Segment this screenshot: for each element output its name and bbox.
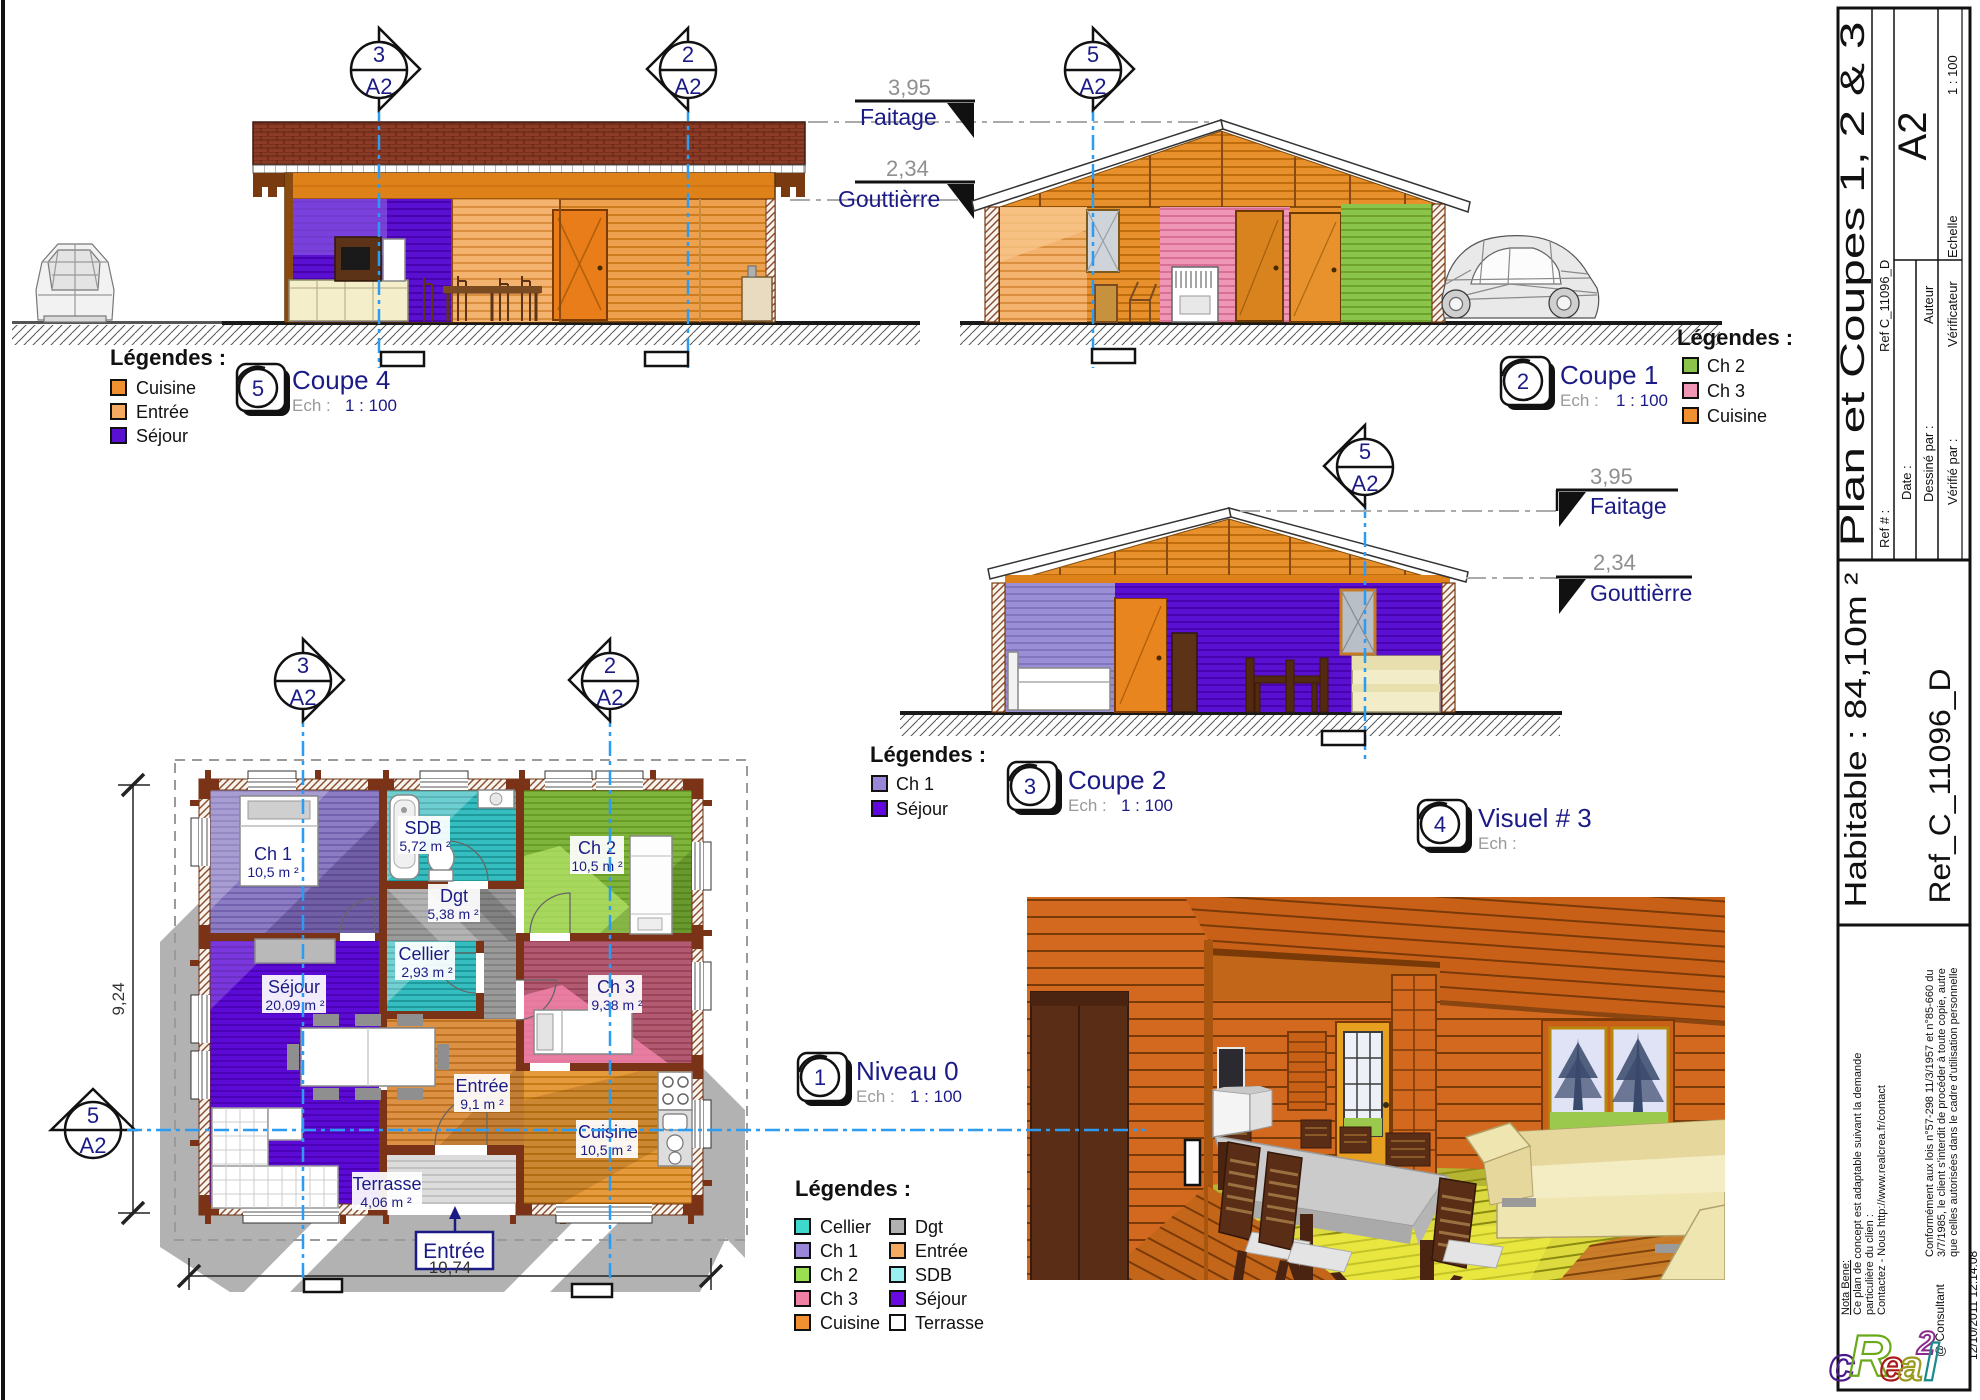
svg-text:2: 2 (604, 653, 616, 678)
svg-text:Auteur: Auteur (1921, 285, 1936, 324)
svg-text:Cellier: Cellier (820, 1217, 871, 1237)
svg-text:3: 3 (373, 42, 385, 67)
svg-text:Ech :: Ech : (1068, 796, 1107, 815)
svg-text:5: 5 (1359, 439, 1371, 464)
svg-text:Ch 3: Ch 3 (597, 977, 635, 997)
svg-text:Vérifié par :: Vérifié par : (1945, 439, 1960, 505)
svg-text:Vérificateur: Vérificateur (1945, 281, 1960, 347)
svg-text:Gouttièrre: Gouttièrre (1590, 580, 1692, 606)
svg-text:Cellier: Cellier (398, 944, 449, 964)
svg-text:3: 3 (1024, 774, 1036, 799)
svg-text:A2: A2 (80, 1133, 107, 1158)
svg-text:Contactez - Nous http://www.re: Contactez - Nous http://www.realcrea.fr/… (1876, 1085, 1888, 1315)
svg-text:10,5 m ²: 10,5 m ² (247, 864, 299, 880)
svg-text:Ch 3: Ch 3 (1707, 381, 1745, 401)
svg-text:Habitable : 84,10m ²: Habitable : 84,10m ² (1838, 573, 1873, 908)
svg-text:9,24: 9,24 (109, 982, 128, 1015)
svg-text:A2: A2 (1891, 112, 1935, 161)
svg-text:Niveau 0: Niveau 0 (856, 1056, 959, 1086)
svg-text:2: 2 (682, 42, 694, 67)
svg-text:Entrée: Entrée (136, 402, 189, 422)
svg-text:A2: A2 (1352, 471, 1379, 496)
svg-text:Coupe 1: Coupe 1 (1560, 360, 1658, 390)
svg-text:2,93 m ²: 2,93 m ² (401, 964, 453, 980)
svg-text:Visuel # 3: Visuel # 3 (1478, 803, 1592, 833)
svg-text:Légendes :: Légendes : (1677, 325, 1793, 350)
svg-text:Séjour: Séjour (136, 426, 188, 446)
svg-text:10,74: 10,74 (429, 1258, 472, 1277)
svg-text:Cuisine: Cuisine (578, 1122, 638, 1142)
svg-text:Cuisine: Cuisine (820, 1313, 880, 1333)
svg-text:12/10/2011 12:14:08: 12/10/2011 12:14:08 (1966, 1250, 1980, 1360)
svg-text:20,09 m ²: 20,09 m ² (265, 997, 324, 1013)
svg-text:1: 1 (814, 1065, 826, 1090)
svg-text:4: 4 (1434, 812, 1446, 837)
svg-text:Dgt: Dgt (915, 1217, 943, 1237)
svg-text:Cuisine: Cuisine (1707, 406, 1767, 426)
svg-text:Ch 2: Ch 2 (1707, 356, 1745, 376)
svg-text:A2: A2 (675, 74, 702, 99)
svg-text:A2: A2 (1080, 74, 1107, 99)
svg-text:Coupe 4: Coupe 4 (292, 365, 390, 395)
svg-text:9,38 m ²: 9,38 m ² (591, 997, 643, 1013)
svg-text:2,34: 2,34 (1593, 550, 1636, 575)
svg-text:Ch 3: Ch 3 (820, 1289, 858, 1309)
svg-text:Ref # :: Ref # : (1877, 510, 1892, 548)
svg-text:Gouttièrre: Gouttièrre (838, 186, 940, 212)
svg-text:Ref C_11096_D: Ref C_11096_D (1877, 260, 1892, 352)
svg-text:Séjour: Séjour (896, 799, 948, 819)
svg-text:Ref_C_11096_D: Ref_C_11096_D (1924, 669, 1957, 904)
svg-text:Entrée: Entrée (915, 1241, 968, 1261)
svg-text:5: 5 (87, 1103, 99, 1128)
svg-text:1 : 100: 1 : 100 (1616, 391, 1668, 410)
svg-text:Légendes :: Légendes : (110, 345, 226, 370)
svg-text:A2: A2 (597, 685, 624, 710)
svg-text:5: 5 (252, 376, 264, 401)
svg-text:Plan et Coupes 1, 2 & 3: Plan et Coupes 1, 2 & 3 (1834, 22, 1872, 547)
svg-text:Légendes :: Légendes : (870, 742, 986, 767)
svg-text:Ech :: Ech : (292, 396, 331, 415)
svg-text:1 : 100: 1 : 100 (1121, 796, 1173, 815)
svg-text:1 : 100: 1 : 100 (345, 396, 397, 415)
svg-text:4,06 m ²: 4,06 m ² (360, 1194, 412, 1210)
svg-text:Cuisine: Cuisine (136, 378, 196, 398)
svg-text:Entrée: Entrée (455, 1076, 508, 1096)
svg-text:Séjour: Séjour (915, 1289, 967, 1309)
svg-text:10,5 m ²: 10,5 m ² (580, 1142, 632, 1158)
svg-text:Ch 2: Ch 2 (820, 1265, 858, 1285)
svg-text:Ech :: Ech : (1560, 391, 1599, 410)
svg-text:Ech :: Ech : (856, 1087, 895, 1106)
svg-text:Nota Bene:: Nota Bene: (1840, 1260, 1852, 1315)
svg-text:2,34: 2,34 (886, 156, 929, 181)
svg-text:Coupe 2: Coupe 2 (1068, 765, 1166, 795)
svg-text:Séjour: Séjour (268, 977, 320, 997)
svg-text:10,5 m ²: 10,5 m ² (571, 858, 623, 874)
svg-text:Dgt: Dgt (440, 886, 468, 906)
svg-text:A2: A2 (290, 685, 317, 710)
svg-text:que celles autorisées dans le: que celles autorisées dans le cadre d'ut… (1948, 967, 1960, 1257)
svg-text:Ce plan de concept est adaptab: Ce plan de concept est adaptable suivant… (1852, 1053, 1864, 1315)
svg-text:Terrasse: Terrasse (915, 1313, 984, 1333)
svg-text:5: 5 (1087, 42, 1099, 67)
svg-text:2: 2 (1517, 369, 1529, 394)
svg-text:3/7/1985, le client s'interdit: 3/7/1985, le client s'interdit de procéd… (1936, 968, 1948, 1257)
svg-text:Faitage: Faitage (1590, 493, 1667, 519)
svg-text:Dessiné par :: Dessiné par : (1921, 425, 1936, 502)
svg-text:Ech :: Ech : (1478, 834, 1517, 853)
svg-text:Ch 1: Ch 1 (254, 844, 292, 864)
svg-text:l: l (1924, 1334, 1940, 1392)
svg-text:SDB: SDB (404, 818, 441, 838)
svg-text:Ch 1: Ch 1 (896, 774, 934, 794)
svg-text:Faitage: Faitage (860, 104, 937, 130)
svg-text:5,72 m ²: 5,72 m ² (399, 838, 451, 854)
svg-text:Conformément aux lois n°57-298: Conformément aux lois n°57-298 11/3/1957… (1924, 970, 1936, 1257)
svg-text:particulière du clien :: particulière du clien : (1864, 1214, 1876, 1315)
svg-text:Echelle: Echelle (1945, 215, 1960, 258)
svg-text:A2: A2 (366, 74, 393, 99)
svg-text:3,95: 3,95 (888, 75, 931, 100)
svg-text:3: 3 (297, 653, 309, 678)
svg-text:3,95: 3,95 (1590, 464, 1633, 489)
svg-text:9,1 m ²: 9,1 m ² (460, 1096, 504, 1112)
svg-text:SDB: SDB (915, 1265, 952, 1285)
svg-text:Date :: Date : (1899, 465, 1914, 500)
svg-text:Légendes :: Légendes : (795, 1176, 911, 1201)
svg-text:Terrasse: Terrasse (352, 1174, 421, 1194)
svg-text:5,38 m ²: 5,38 m ² (427, 906, 479, 922)
svg-text:1 : 100: 1 : 100 (1945, 55, 1960, 95)
svg-text:1 : 100: 1 : 100 (910, 1087, 962, 1106)
svg-text:Ch 1: Ch 1 (820, 1241, 858, 1261)
